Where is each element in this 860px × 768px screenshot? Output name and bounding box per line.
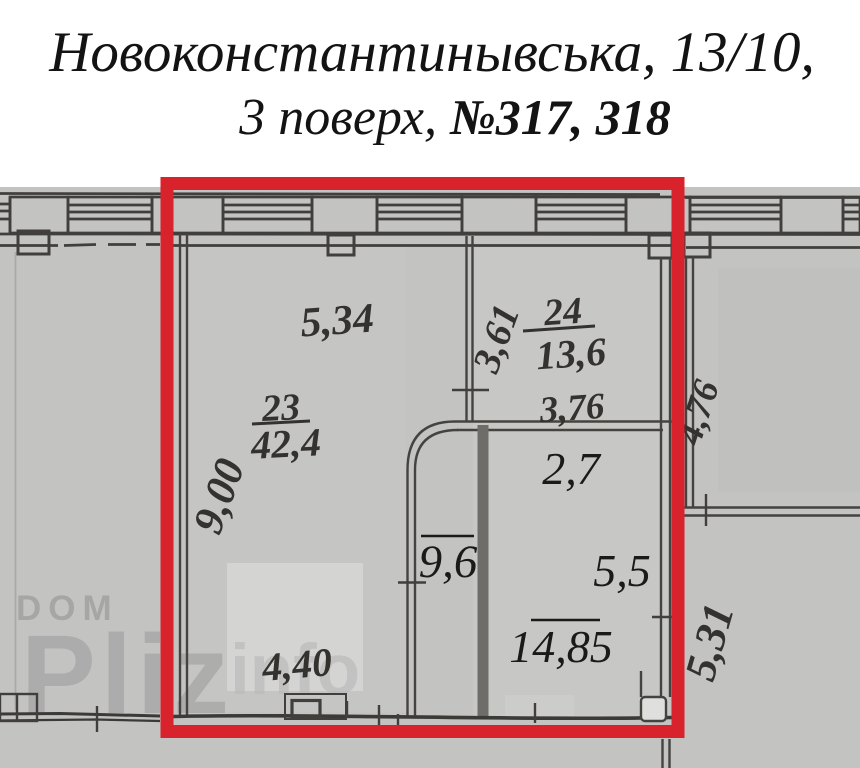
svg-text:5,5: 5,5	[593, 545, 651, 596]
svg-text:9,6: 9,6	[419, 536, 478, 588]
svg-text:3,76: 3,76	[537, 386, 606, 432]
svg-text:4,40: 4,40	[259, 639, 334, 690]
svg-text:5,34: 5,34	[299, 295, 376, 346]
svg-text:14,85: 14,85	[509, 621, 613, 672]
svg-text:3 поверх, №317, 318: 3 поверх, №317, 318	[238, 89, 670, 146]
svg-text:Pliz: Pliz	[21, 612, 234, 737]
svg-text:2,7: 2,7	[542, 443, 602, 494]
svg-text:42,4: 42,4	[249, 419, 322, 468]
svg-text:Новоконстантинывська, 13/10,: Новоконстантинывська, 13/10,	[48, 21, 814, 84]
svg-text:13,6: 13,6	[534, 329, 607, 379]
